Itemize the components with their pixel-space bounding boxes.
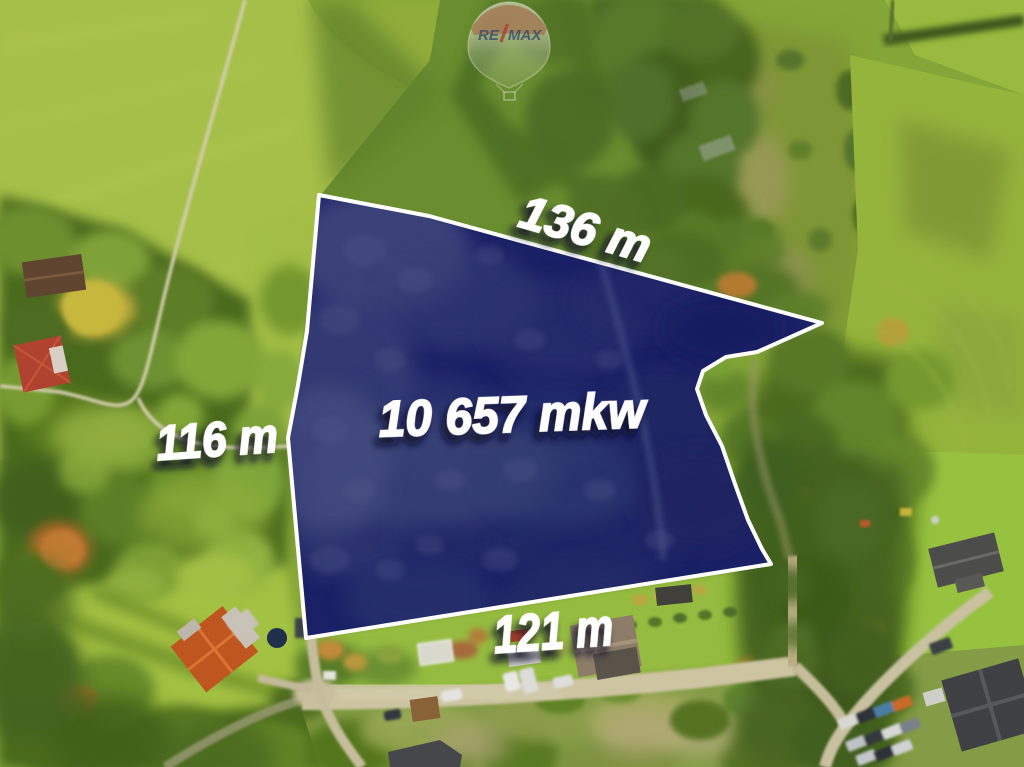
svg-text:121 m: 121 m xyxy=(491,598,615,665)
svg-text:10 657 mkw: 10 657 mkw xyxy=(378,381,650,447)
svg-text:MAX: MAX xyxy=(508,27,542,44)
svg-text:116 m: 116 m xyxy=(154,409,279,471)
svg-text:RE: RE xyxy=(478,27,500,44)
